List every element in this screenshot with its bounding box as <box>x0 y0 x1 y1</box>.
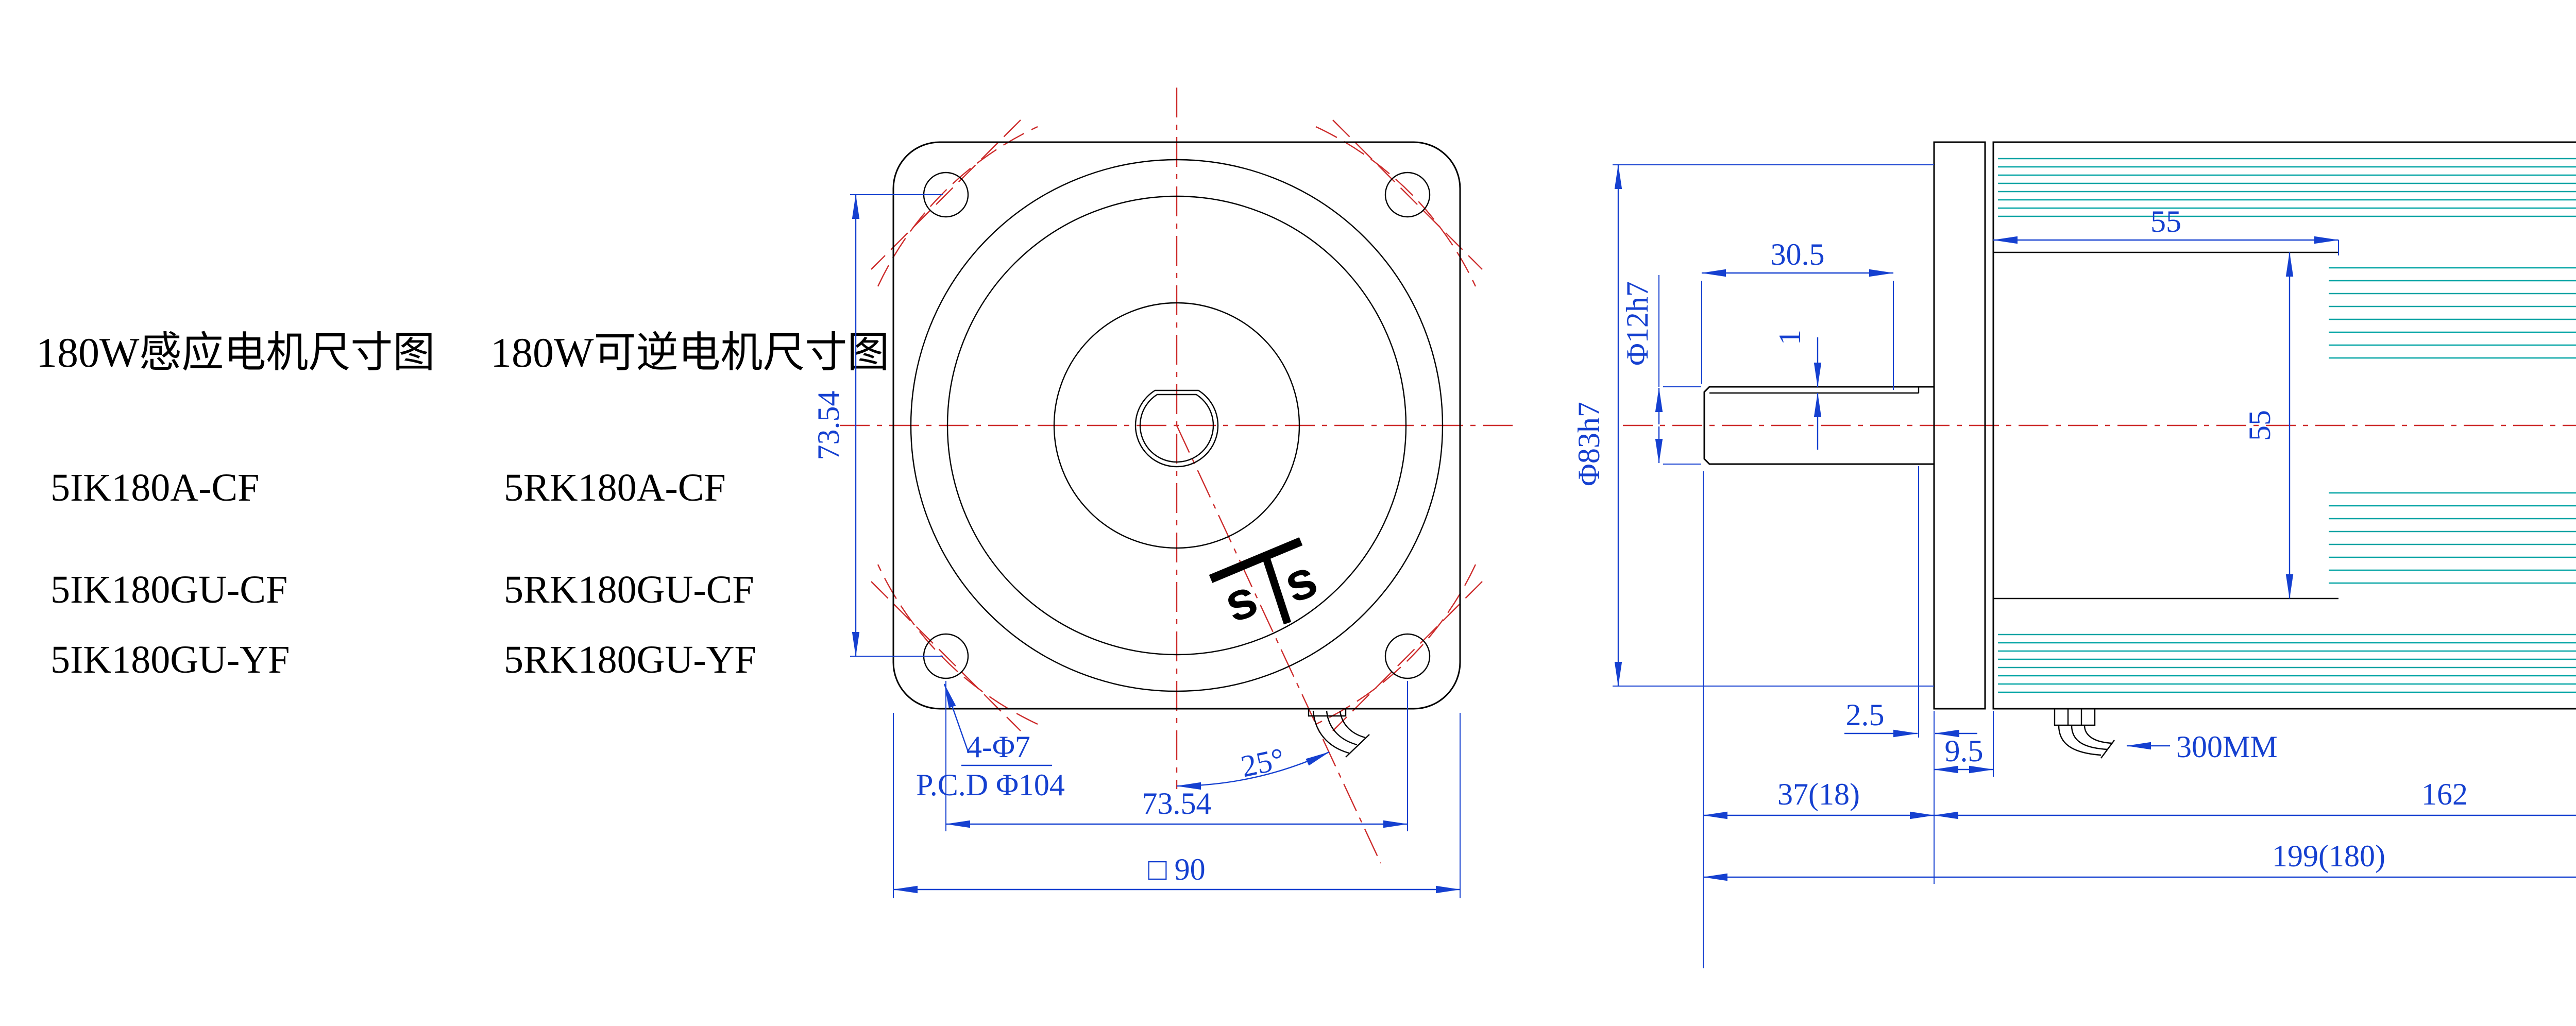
front-lead-wire <box>1309 709 1369 757</box>
dim-flange-square: □ 90 <box>1148 852 1205 886</box>
dim-shaft-dia: Φ12h7 <box>1620 281 1654 366</box>
pcd-arc-br <box>1316 565 1476 724</box>
side-view: 30.5 1 Φ12h7 Φ83h7 55 55 <box>1572 142 2576 968</box>
side-dimensions: 30.5 1 Φ12h7 Φ83h7 55 55 <box>1572 165 2576 968</box>
front-view: s s 73.54 73.54 □ 90 4-Φ7 P.C.D Φ104 <box>811 88 1520 898</box>
model-reversible-1: 5RK180A-CF <box>504 466 726 509</box>
motor-dimension-drawing: 180W感应电机尺寸图 180W可逆电机尺寸图 5IK180A-CF 5IK18… <box>0 0 2576 1026</box>
model-induction-1: 5IK180A-CF <box>50 466 259 509</box>
pcd-arc-bl <box>878 565 1038 724</box>
front-centerlines <box>840 88 1520 863</box>
front-dimensions: 73.54 73.54 □ 90 4-Φ7 P.C.D Φ104 25° <box>811 195 1460 898</box>
model-induction-3: 5IK180GU-YF <box>50 638 290 681</box>
title-reversible-motor: 180W可逆电机尺寸图 <box>490 329 889 376</box>
dim-bolt-spacing-vertical: 73.54 <box>811 391 845 460</box>
pcd-arc-tr <box>1316 127 1476 286</box>
left-panel: 180W感应电机尺寸图 180W可逆电机尺寸图 5IK180A-CF 5IK18… <box>36 329 889 681</box>
dim-spigot-dia: Φ83h7 <box>1572 402 1606 486</box>
dim-key-depth: 1 <box>1773 330 1807 345</box>
dim-body-dia: 55 <box>2243 410 2277 441</box>
model-reversible-2: 5RK180GU-CF <box>504 568 754 611</box>
dim-front-section-length: 55 <box>2150 204 2181 238</box>
model-induction-2: 5IK180GU-CF <box>50 568 287 611</box>
dim-body-length: 162 <box>2421 777 2468 811</box>
label-pitch-circle-dia: P.C.D Φ104 <box>916 768 1065 802</box>
model-reversible-3: 5RK180GU-YF <box>504 638 756 681</box>
dim-shaft-extension: 37(18) <box>1777 777 1860 811</box>
dim-key-end-to-flange: 2.5 <box>1846 698 1885 732</box>
dim-flange-thickness: 9.5 <box>1945 734 1984 768</box>
dim-cable-angle: 25° <box>1238 741 1287 783</box>
label-lead-wire-length: 300MM <box>2176 730 2278 764</box>
dim-overall-length: 199(180) <box>2272 839 2385 873</box>
pcd-arc-tl <box>878 127 1038 286</box>
logo-letter-s-left: s <box>1216 568 1265 634</box>
dim-key-length: 30.5 <box>1771 237 1825 271</box>
dim-bolt-spacing-horizontal: 73.54 <box>1142 786 1212 820</box>
label-mounting-holes: 4-Φ7 <box>967 730 1030 764</box>
title-induction-motor: 180W感应电机尺寸图 <box>36 329 435 376</box>
side-lead-wire <box>2055 709 2114 758</box>
